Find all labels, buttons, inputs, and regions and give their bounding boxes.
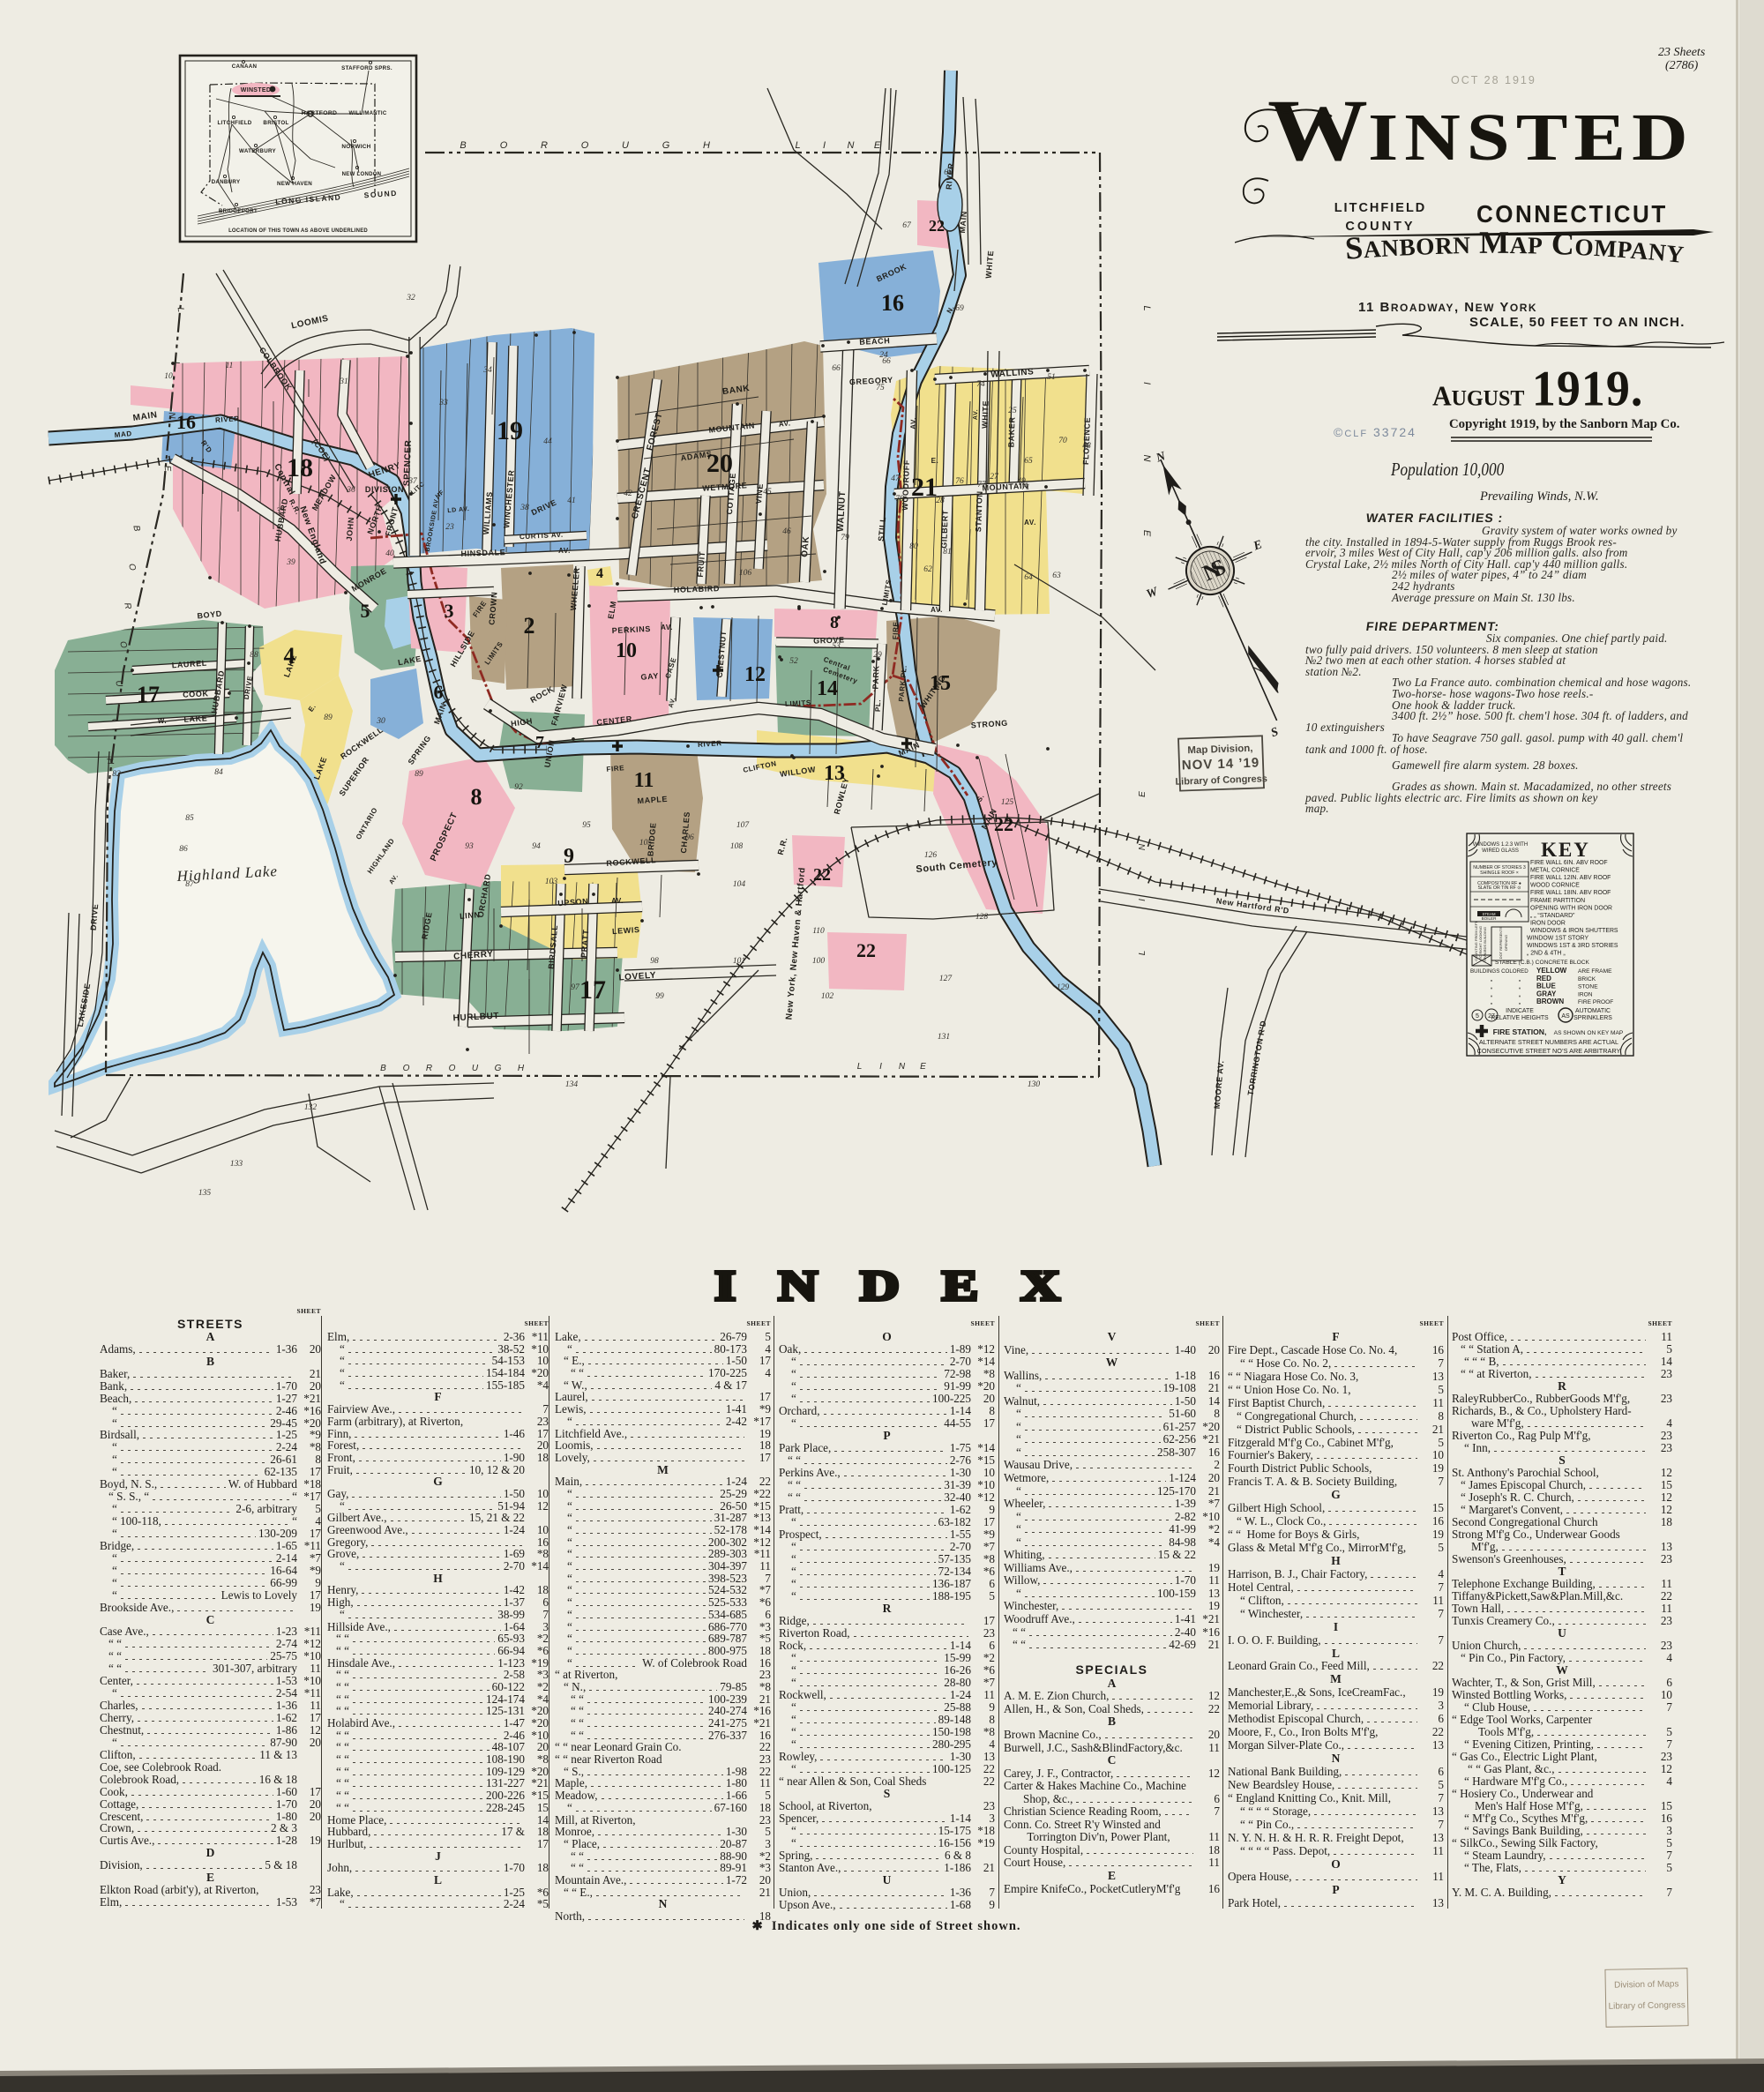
svg-text:FIRE: FIRE xyxy=(892,621,901,639)
svg-text:80: 80 xyxy=(909,542,918,551)
svg-text:129: 129 xyxy=(1057,983,1070,992)
svg-text:93: 93 xyxy=(465,842,474,851)
svg-text:BAKER: BAKER xyxy=(1006,416,1016,447)
svg-text:132: 132 xyxy=(304,1103,318,1112)
svg-text:WILLIMANTIC: WILLIMANTIC xyxy=(349,111,387,116)
svg-text:CANAAN: CANAAN xyxy=(232,64,258,70)
svg-text:126: 126 xyxy=(924,851,938,860)
svg-text:135: 135 xyxy=(198,1189,212,1198)
svg-text:S: S xyxy=(1269,725,1281,740)
svg-text:NOV 14 ’19: NOV 14 ’19 xyxy=(1182,755,1260,773)
svg-text:FLORENCE: FLORENCE xyxy=(1081,417,1092,466)
svg-text:LIMITS: LIMITS xyxy=(785,699,811,708)
svg-text:AV.: AV. xyxy=(973,409,979,421)
svg-text:AV.: AV. xyxy=(778,419,791,428)
svg-text:19: 19 xyxy=(497,416,523,445)
svg-text:14: 14 xyxy=(817,677,838,700)
svg-text:E: E xyxy=(1141,530,1152,537)
svg-text:E: E xyxy=(162,465,173,473)
svg-text:53: 53 xyxy=(832,642,841,651)
svg-text:11: 11 xyxy=(634,769,654,792)
svg-text:17: 17 xyxy=(579,975,606,1005)
svg-text:WHITE: WHITE xyxy=(980,400,990,429)
svg-text:29: 29 xyxy=(873,651,882,660)
svg-text:WIRED GLASS: WIRED GLASS xyxy=(1482,848,1519,854)
svg-text:DRIVE: DRIVE xyxy=(89,903,101,930)
svg-text:ARE FRAME: ARE FRAME xyxy=(1578,968,1612,975)
svg-text:46: 46 xyxy=(782,527,791,536)
svg-text:SPRINKLERS: SPRINKLERS xyxy=(1573,1015,1612,1021)
svg-text:New Hartford R'D: New Hartford R'D xyxy=(1215,896,1289,915)
svg-text:133: 133 xyxy=(230,1160,243,1169)
svg-text:7: 7 xyxy=(535,733,544,752)
svg-text:62: 62 xyxy=(923,565,932,574)
svg-text:O: O xyxy=(117,640,128,650)
svg-text:16: 16 xyxy=(176,411,196,433)
svg-text:U: U xyxy=(472,1064,479,1073)
svg-text:IRON: IRON xyxy=(1578,991,1593,997)
svg-text:R: R xyxy=(541,140,548,151)
svg-text:18: 18 xyxy=(287,453,313,482)
svg-text:„ 2ND & 4TH „: „ 2ND & 4TH „ xyxy=(1527,951,1566,957)
svg-text:48: 48 xyxy=(1082,442,1091,451)
svg-text:77: 77 xyxy=(977,481,987,489)
svg-text:N: N xyxy=(1154,450,1169,466)
svg-text:AV.: AV. xyxy=(611,897,624,905)
svg-text:HINSDALE: HINSDALE xyxy=(460,548,505,558)
svg-text:SANBORN MAP COMPANY.: SANBORN MAP COMPANY. xyxy=(1346,219,1686,268)
svg-text:BEACH: BEACH xyxy=(859,336,890,347)
svg-text:AV.: AV. xyxy=(661,624,673,631)
svg-text:128: 128 xyxy=(975,913,989,922)
svg-text:39: 39 xyxy=(286,558,295,567)
svg-text:86: 86 xyxy=(179,845,188,854)
svg-text:RELATIVE HEIGHTS: RELATIVE HEIGHTS xyxy=(1491,1015,1549,1021)
svg-text:L: L xyxy=(1138,950,1147,956)
svg-text:R: R xyxy=(426,1064,433,1073)
svg-text:O: O xyxy=(126,563,137,572)
svg-text:H: H xyxy=(518,1064,525,1073)
svg-text:L: L xyxy=(176,307,186,314)
svg-text:E: E xyxy=(1251,538,1265,554)
svg-text:I: I xyxy=(1141,382,1152,385)
svg-text:STONE: STONE xyxy=(1578,984,1598,990)
svg-text:SPRING: SPRING xyxy=(407,734,433,766)
svg-text:PL.: PL. xyxy=(874,699,882,713)
svg-text:13: 13 xyxy=(824,762,845,785)
svg-text:10: 10 xyxy=(164,372,173,381)
svg-text:OAK: OAK xyxy=(800,535,811,557)
svg-text:40: 40 xyxy=(385,549,394,558)
svg-text:GILBERT: GILBERT xyxy=(939,510,950,549)
svg-text:RIVER: RIVER xyxy=(215,415,240,424)
svg-text:4: 4 xyxy=(596,566,603,581)
svg-text:YELLOW: YELLOW xyxy=(1536,967,1567,975)
svg-text:SUPERIOR: SUPERIOR xyxy=(338,755,371,797)
svg-text:134: 134 xyxy=(565,1080,579,1089)
svg-text:LOOMIS: LOOMIS xyxy=(290,314,329,332)
svg-text:GREGORY: GREGORY xyxy=(849,376,893,387)
svg-text:L: L xyxy=(795,140,801,151)
svg-text:PARK: PARK xyxy=(871,665,881,690)
svg-text:30: 30 xyxy=(376,717,385,726)
svg-text:23: 23 xyxy=(445,523,454,532)
svg-text:38: 38 xyxy=(519,504,529,512)
svg-text:4: 4 xyxy=(284,643,295,669)
svg-text:8: 8 xyxy=(830,613,839,632)
svg-text:84: 84 xyxy=(214,768,223,777)
svg-text:FIRE WALL 12IN. ABV ROOF: FIRE WALL 12IN. ABV ROOF xyxy=(1530,875,1611,881)
svg-text:36: 36 xyxy=(346,486,355,495)
svg-text:42: 42 xyxy=(624,489,632,498)
svg-text:TOWARDS BUILDING: TOWARDS BUILDING xyxy=(1483,927,1487,962)
svg-text:E: E xyxy=(1138,790,1147,797)
svg-text:LINN: LINN xyxy=(460,910,481,921)
svg-text:E.: E. xyxy=(931,457,939,465)
svg-text:N: N xyxy=(1138,843,1147,850)
svg-text:131: 131 xyxy=(938,1033,950,1042)
svg-text:MAIN: MAIN xyxy=(958,211,968,234)
svg-text:127: 127 xyxy=(939,975,953,983)
svg-text:NEW LONDON: NEW LONDON xyxy=(342,172,382,177)
svg-text:I: I xyxy=(1138,898,1147,901)
svg-text:GRAY: GRAY xyxy=(1536,990,1557,997)
svg-text:BOILER: BOILER xyxy=(1482,916,1498,921)
svg-text:97: 97 xyxy=(571,983,580,992)
svg-text:E: E xyxy=(920,1062,927,1072)
svg-text:76: 76 xyxy=(955,477,964,486)
svg-text:41: 41 xyxy=(567,497,576,505)
svg-text:71: 71 xyxy=(1021,483,1030,492)
svg-text:15: 15 xyxy=(930,672,951,695)
svg-text:98: 98 xyxy=(650,957,659,966)
svg-text:107: 107 xyxy=(736,821,751,830)
svg-text:New York, New Haven & Hartford: New York, New Haven & Hartford xyxy=(784,867,807,1020)
svg-text:DIVISION: DIVISION xyxy=(365,485,404,494)
svg-text:G: G xyxy=(495,1064,503,1073)
svg-text:6: 6 xyxy=(434,681,444,703)
svg-text:„ „ “STANDARD”: „ „ “STANDARD” xyxy=(1530,913,1575,919)
svg-text:COOK: COOK xyxy=(183,689,209,699)
svg-text:2: 2 xyxy=(524,613,535,639)
svg-text:MOORE AV.: MOORE AV. xyxy=(1213,1060,1226,1110)
svg-text:68: 68 xyxy=(944,168,953,177)
svg-text:22: 22 xyxy=(929,217,945,235)
svg-text:LOCATION OF THIS TOWN AS ABOVE: LOCATION OF THIS TOWN AS ABOVE UNDERLINE… xyxy=(228,228,368,234)
svg-text:96: 96 xyxy=(685,833,694,842)
svg-text:OPENING: OPENING xyxy=(1504,935,1508,951)
svg-text:27: 27 xyxy=(990,473,999,482)
svg-text:22: 22 xyxy=(813,865,831,885)
svg-text:89: 89 xyxy=(324,714,333,722)
svg-text:70: 70 xyxy=(1058,437,1067,445)
svg-text:WINDOWS 1ST & 3RD STORIES: WINDOWS 1ST & 3RD STORIES xyxy=(1527,943,1618,949)
svg-text:WATERBURY: WATERBURY xyxy=(239,148,276,154)
svg-text:WINSTED: WINSTED xyxy=(241,87,271,93)
svg-text:WINDOWS 1.2.3 WITH: WINDOWS 1.2.3 WITH xyxy=(1473,842,1528,848)
svg-text:O: O xyxy=(500,140,508,151)
svg-text:L: L xyxy=(857,1062,863,1072)
svg-text:ONTARIO: ONTARIO xyxy=(355,806,379,841)
svg-text:DOT REPRESENTS: DOT REPRESENTS xyxy=(1499,926,1503,959)
svg-text:METAL CORNICE: METAL CORNICE xyxy=(1530,868,1580,874)
svg-text:WHITE: WHITE xyxy=(984,250,996,279)
svg-text:44: 44 xyxy=(543,437,552,446)
svg-text:66: 66 xyxy=(882,357,891,366)
svg-text:74: 74 xyxy=(976,380,985,389)
svg-text:100: 100 xyxy=(812,957,826,966)
svg-text:10: 10 xyxy=(616,639,637,662)
svg-text:AV.: AV. xyxy=(1024,519,1036,527)
svg-text:79: 79 xyxy=(841,534,849,542)
svg-text:99: 99 xyxy=(655,992,664,1001)
svg-text:BRISTOL: BRISTOL xyxy=(263,120,288,126)
svg-text:85: 85 xyxy=(185,814,194,823)
svg-text:ALTERNATE STREET NUMBERS ARE A: ALTERNATE STREET NUMBERS ARE ACTUAL xyxy=(1479,1038,1618,1046)
svg-text:IRON DOOR: IRON DOOR xyxy=(1530,920,1566,926)
svg-text:W: W xyxy=(1145,585,1161,601)
svg-text:Map Division,: Map Division, xyxy=(1187,743,1252,757)
svg-text:22: 22 xyxy=(856,939,876,961)
svg-text:47: 47 xyxy=(891,474,901,483)
svg-text:95: 95 xyxy=(582,821,591,830)
svg-text:I: I xyxy=(823,140,826,151)
svg-text:12: 12 xyxy=(744,663,766,686)
svg-text:DANBURY: DANBURY xyxy=(212,179,241,185)
svg-text:LITCHFIELD: LITCHFIELD xyxy=(217,120,251,126)
svg-text:81: 81 xyxy=(943,548,952,557)
svg-text:108: 108 xyxy=(730,842,744,851)
svg-text:88: 88 xyxy=(250,651,258,660)
svg-text:106: 106 xyxy=(739,569,752,578)
svg-text:125: 125 xyxy=(1001,798,1014,807)
svg-text:105: 105 xyxy=(639,839,653,848)
svg-text:N: N xyxy=(167,412,177,420)
svg-text:N: N xyxy=(899,1062,906,1072)
svg-text:78: 78 xyxy=(895,495,904,504)
svg-text:AV.: AV. xyxy=(909,417,917,430)
svg-text:92: 92 xyxy=(514,783,523,792)
svg-text:130: 130 xyxy=(1028,1080,1041,1089)
svg-text:G: G xyxy=(662,140,670,151)
svg-text:37: 37 xyxy=(407,477,418,486)
svg-text:75: 75 xyxy=(876,384,885,392)
svg-text:HIGHLAND: HIGHLAND xyxy=(366,837,396,876)
svg-text:63: 63 xyxy=(1052,572,1061,580)
svg-text:CONSECUTIVE STREET NO’S ARE AR: CONSECUTIVE STREET NO’S ARE ARBITRARY xyxy=(1477,1047,1621,1055)
svg-text:65: 65 xyxy=(1024,457,1033,466)
svg-text:3: 3 xyxy=(445,600,454,622)
svg-text:RED: RED xyxy=(1536,975,1551,982)
svg-text:BOYD: BOYD xyxy=(197,609,222,621)
svg-text:87: 87 xyxy=(185,880,195,889)
svg-text:B: B xyxy=(131,525,141,533)
svg-text:5: 5 xyxy=(1476,1013,1479,1020)
svg-text:O: O xyxy=(449,1064,457,1073)
svg-text:LAKE: LAKE xyxy=(183,714,207,723)
svg-text:5: 5 xyxy=(361,600,370,622)
svg-text:45: 45 xyxy=(763,488,772,497)
svg-text:28: 28 xyxy=(936,497,945,505)
svg-text:AUTOMATIC: AUTOMATIC xyxy=(1575,1008,1611,1014)
svg-text:R: R xyxy=(122,602,132,611)
svg-text:O: O xyxy=(403,1064,411,1073)
svg-text:33: 33 xyxy=(438,399,448,407)
svg-text:KEY: KEY xyxy=(1541,839,1590,861)
svg-text:FIRE PROOF: FIRE PROOF xyxy=(1578,999,1613,1005)
svg-text:STAFFORD SPRS.: STAFFORD SPRS. xyxy=(341,65,392,71)
svg-text:N: N xyxy=(1141,455,1152,463)
svg-text:AS SHOWN ON KEY MAP: AS SHOWN ON KEY MAP xyxy=(1554,1030,1624,1036)
svg-text:U: U xyxy=(622,140,629,151)
svg-text:MAIN: MAIN xyxy=(132,410,158,423)
svg-text:GAY: GAY xyxy=(640,671,659,682)
svg-text:25: 25 xyxy=(1008,407,1017,415)
svg-text:H: H xyxy=(703,140,710,151)
svg-text:FIRE WALL 6IN. ABV ROOF: FIRE WALL 6IN. ABV ROOF xyxy=(1530,860,1608,866)
svg-text:OPENING WITH IRON DOOR: OPENING WITH IRON DOOR xyxy=(1530,905,1612,911)
svg-text:34: 34 xyxy=(482,366,492,375)
svg-text:INDICATE: INDICATE xyxy=(1506,1008,1534,1014)
svg-text:FIRE WALL 18IN. ABV ROOF: FIRE WALL 18IN. ABV ROOF xyxy=(1530,890,1611,896)
svg-text:51: 51 xyxy=(1047,373,1056,382)
svg-text:FRAME PARTITION: FRAME PARTITION xyxy=(1530,898,1585,904)
svg-text:B: B xyxy=(380,1064,387,1073)
svg-text:64: 64 xyxy=(1024,573,1033,582)
svg-text:FIRE: FIRE xyxy=(606,764,624,773)
svg-text:102: 102 xyxy=(821,992,834,1001)
svg-text:TORRINGTON R'D: TORRINGTON R'D xyxy=(1246,1020,1268,1096)
svg-text:22: 22 xyxy=(994,813,1013,835)
svg-text:RIVER: RIVER xyxy=(698,739,722,749)
svg-text:NEW HAVEN: NEW HAVEN xyxy=(277,181,312,187)
svg-text:R.R.: R.R. xyxy=(776,836,789,855)
svg-text:66: 66 xyxy=(832,364,841,373)
svg-text:W.: W. xyxy=(158,717,168,725)
svg-text:I: I xyxy=(879,1062,883,1072)
svg-text:69: 69 xyxy=(955,304,964,313)
svg-text:8: 8 xyxy=(471,784,482,810)
svg-text:L: L xyxy=(1141,305,1152,311)
svg-text:89: 89 xyxy=(415,770,423,779)
svg-text:N: N xyxy=(848,140,856,151)
svg-text:SLATE OR TIN RF ⊙: SLATE OR TIN RF ⊙ xyxy=(1477,885,1521,891)
svg-text:STRONG: STRONG xyxy=(970,719,1008,730)
svg-text:67: 67 xyxy=(902,221,912,230)
svg-text:32: 32 xyxy=(406,294,415,303)
svg-text:52: 52 xyxy=(789,657,798,666)
svg-text:WINDOWS & IRON SHUTTERS: WINDOWS & IRON SHUTTERS xyxy=(1530,928,1618,934)
svg-text:STABLE (C.B.) CONCRETE BLOCK: STABLE (C.B.) CONCRETE BLOCK xyxy=(1495,960,1589,966)
svg-text:B: B xyxy=(460,140,466,151)
svg-text:NORWICH: NORWICH xyxy=(341,144,370,150)
svg-text:AV.: AV. xyxy=(558,547,571,555)
svg-text:HARTFORD: HARTFORD xyxy=(302,110,338,116)
svg-text:82: 82 xyxy=(112,770,121,779)
svg-text:BRICK: BRICK xyxy=(1578,976,1596,982)
svg-text:WINDOW 1ST STORY: WINDOW 1ST STORY xyxy=(1527,936,1588,942)
svg-text:17: 17 xyxy=(137,682,160,707)
svg-text:AS: AS xyxy=(1561,1013,1570,1020)
svg-text:104: 104 xyxy=(733,880,746,889)
svg-text:AV.: AV. xyxy=(388,873,400,885)
svg-text:WOOD CORNICE: WOOD CORNICE xyxy=(1530,883,1580,889)
svg-text:AV.: AV. xyxy=(931,606,943,614)
svg-text:20: 20 xyxy=(706,449,733,478)
svg-text:101: 101 xyxy=(733,957,745,966)
svg-text:LOVELY: LOVELY xyxy=(618,971,656,983)
svg-text:103: 103 xyxy=(545,878,558,886)
svg-text:16: 16 xyxy=(881,290,904,316)
svg-text:11: 11 xyxy=(226,362,234,370)
svg-text:110: 110 xyxy=(812,927,825,936)
svg-text:31: 31 xyxy=(339,377,348,386)
svg-text:O: O xyxy=(581,140,589,151)
svg-text:SHINGLE ROOF ×: SHINGLE ROOF × xyxy=(1480,870,1519,876)
svg-text:Library of Congress: Library of Congress xyxy=(1175,773,1267,788)
svg-text:9: 9 xyxy=(564,845,574,868)
svg-text:94: 94 xyxy=(532,842,541,851)
svg-text:BROWN: BROWN xyxy=(1536,997,1564,1005)
svg-text:BRIDGEPORT: BRIDGEPORT xyxy=(219,208,258,214)
svg-text:21: 21 xyxy=(911,473,938,502)
svg-text:35: 35 xyxy=(275,507,285,516)
svg-text:FIRE STATION,: FIRE STATION, xyxy=(1493,1027,1547,1036)
svg-text:BLUE: BLUE xyxy=(1536,982,1556,990)
svg-text:HOLABIRD: HOLABIRD xyxy=(674,584,721,594)
svg-text:STANTON: STANTON xyxy=(974,490,984,532)
